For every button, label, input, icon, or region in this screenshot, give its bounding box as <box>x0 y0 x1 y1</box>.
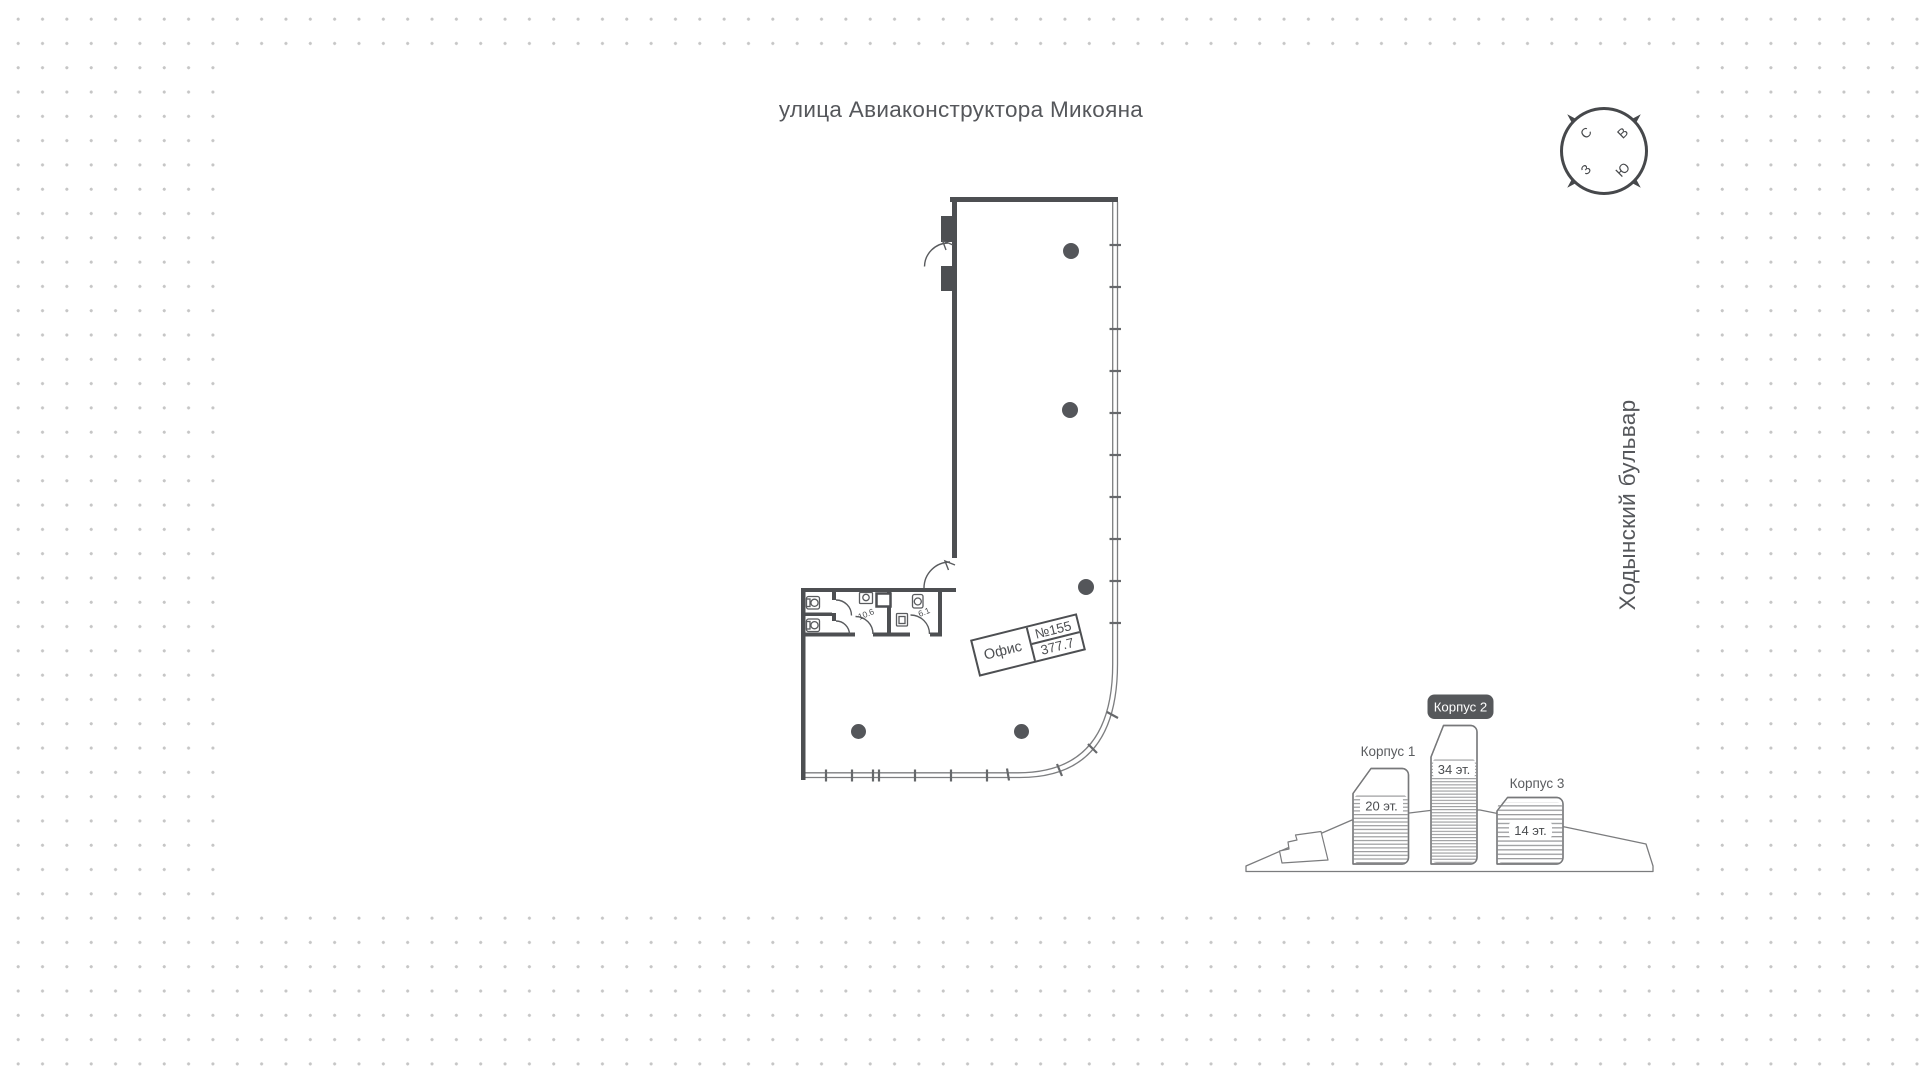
duct-shaft <box>877 594 891 607</box>
buildings-minimap: 20 эт. Корпус 1 34 эт. Корпус 2 14 эт. К… <box>1240 676 1660 880</box>
walls <box>801 197 1118 780</box>
building-korpus-3[interactable]: 14 эт. <box>1497 798 1563 865</box>
columns <box>851 243 1094 739</box>
korpus-3-label: Корпус 3 <box>1510 776 1565 791</box>
building-korpus-1[interactable]: 20 эт. <box>1353 769 1409 865</box>
room-area-labels: 10.6 6.1 <box>856 605 931 622</box>
doors <box>836 241 955 635</box>
korpus-2-label: Корпус 2 <box>1434 700 1488 715</box>
compass-circle <box>1548 95 1660 207</box>
building-korpus-2[interactable]: 34 эт. <box>1431 726 1477 865</box>
korpus-1-label: Корпус 1 <box>1361 744 1416 759</box>
street-label-right: Ходынский бульвар <box>1615 395 1641 615</box>
compass-rose: С В Ю З <box>1548 95 1660 207</box>
floor-plan: 10.6 6.1 <box>760 170 1160 810</box>
korpus-2-badge[interactable]: Корпус 2 <box>1428 695 1494 720</box>
korpus-3-floors: 14 эт. <box>1514 823 1547 838</box>
street-label-top: улица Авиаконструктора Микояна <box>771 97 1151 123</box>
korpus-1-floors: 20 эт. <box>1365 799 1398 814</box>
window-walls <box>801 202 1118 778</box>
low-building-footprint <box>1280 832 1329 864</box>
korpus-2-floors: 34 эт. <box>1438 762 1471 777</box>
window-ticks <box>826 245 1121 782</box>
page-background: { "map": { "street_top": "улица Авиаконс… <box>0 0 1920 1078</box>
